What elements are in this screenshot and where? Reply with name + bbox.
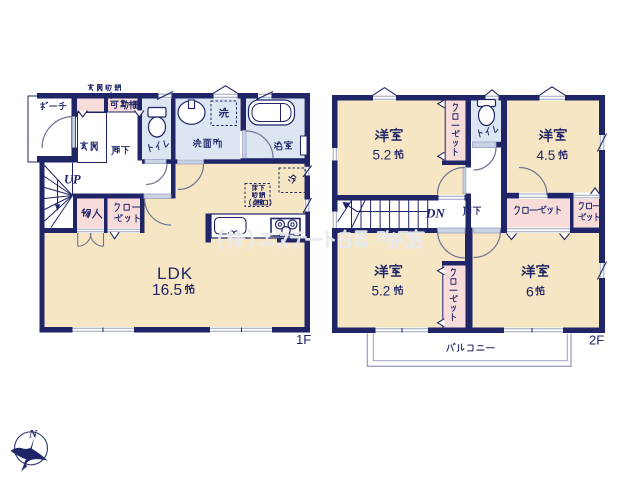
svg-text:4.5: 4.5: [537, 148, 556, 163]
svg-text:5.2: 5.2: [373, 148, 392, 163]
svg-text:N: N: [28, 429, 38, 441]
svg-text:UP: UP: [64, 173, 81, 187]
svg-text:16.5: 16.5: [152, 282, 182, 299]
svg-text:5.2: 5.2: [372, 284, 391, 299]
svg-text:2F: 2F: [589, 333, 604, 348]
svg-text:6: 6: [526, 284, 534, 300]
svg-text:DN: DN: [425, 206, 445, 221]
svg-text:LDK: LDK: [157, 264, 193, 283]
svg-text:1F: 1F: [296, 332, 311, 347]
